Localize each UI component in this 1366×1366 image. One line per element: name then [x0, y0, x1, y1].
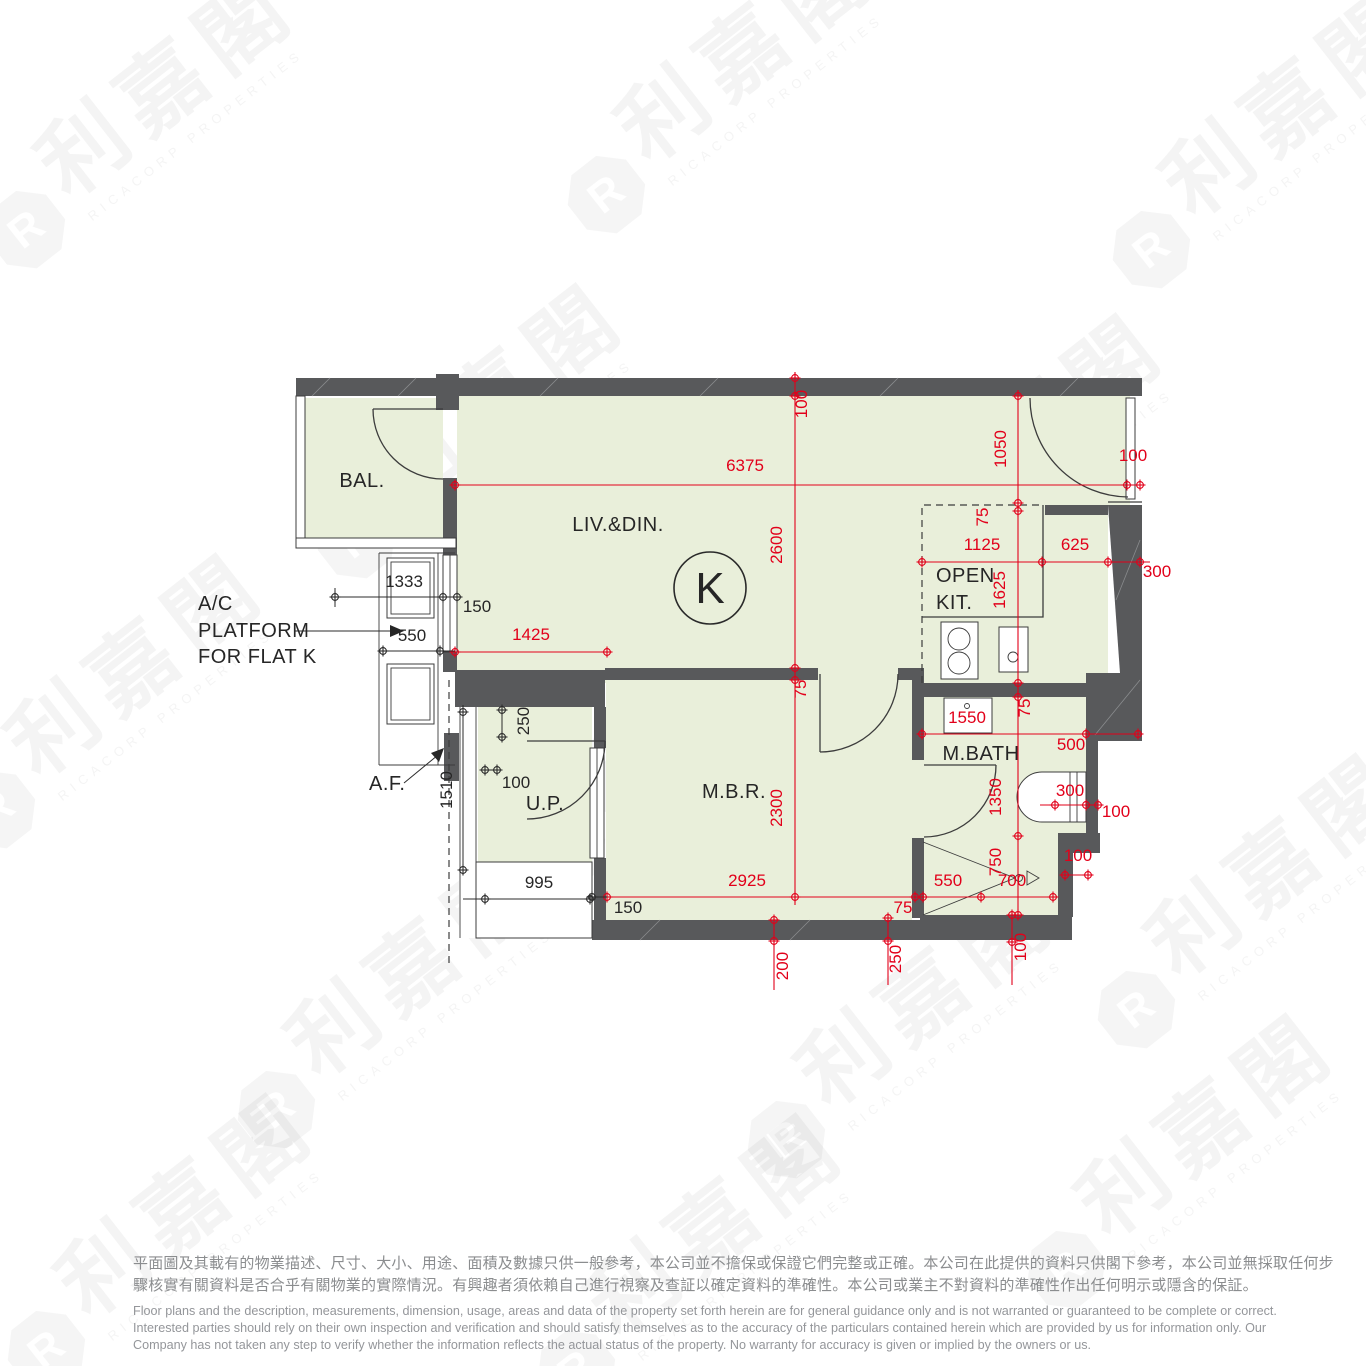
dim-entry-depth: 1050 — [991, 430, 1010, 468]
dim-living-depth: 2600 — [767, 526, 786, 564]
label-balcony: BAL. — [339, 470, 384, 492]
dim-mbr-depth: 2300 — [767, 789, 786, 827]
dim-shower-wall: 75 — [894, 898, 913, 917]
dim-mbr-wall: 75 — [791, 680, 810, 699]
dim-af-length: 1510 — [437, 771, 456, 809]
disclaimer-zh-line2: 驟核實有關資料是否合乎有關物業的實際情況。有興趣者須依賴自己進行視察及查証以確定… — [133, 1275, 1333, 1297]
dim-shower-w1: 550 — [934, 871, 962, 890]
dim-up-step: 250 — [514, 707, 533, 735]
up-floor — [478, 707, 592, 862]
bath-door-gap — [912, 760, 924, 838]
balcony-bottom-parapet — [296, 538, 456, 548]
disclaimer-en-line1: Floor plans and the description, measure… — [133, 1303, 1333, 1320]
disclaimer-en: Floor plans and the description, measure… — [133, 1303, 1333, 1354]
label-utility-platform: U.P. — [526, 793, 564, 815]
dim-bath-depth: 1350 — [986, 778, 1005, 816]
dim-bottom-wall: 100 — [1011, 933, 1030, 961]
dim-mbr-width: 2925 — [728, 871, 766, 890]
label-ac-platform-2: PLATFORM — [198, 620, 309, 642]
dim-entry-door: 100 — [1119, 446, 1147, 465]
label-open-kitchen-1: OPEN — [936, 565, 995, 587]
dim-wall-150: 150 — [463, 597, 491, 616]
kitchen-sink — [999, 627, 1028, 672]
dim-vanity: 1550 — [948, 708, 986, 727]
dim-top-wall: 100 — [792, 390, 811, 418]
balcony-left-parapet — [296, 396, 305, 548]
dim-right-wall: 300 — [1143, 562, 1171, 581]
dim-kit-width-right: 625 — [1061, 535, 1089, 554]
floor-plan-drawing: 100 6375 2600 1050 100 75 1125 625 300 1… — [0, 0, 1366, 1366]
dim-step: 100 — [1064, 846, 1092, 865]
dim-liv-left: 1425 — [512, 625, 550, 644]
label-master-bath: M.BATH — [942, 743, 1019, 765]
balcony-floor — [300, 398, 443, 540]
disclaimer: 平面圖及其載有的物業描述、尺寸、大小、用途、面積及數據只供一般參考，本公司並不擔… — [133, 1253, 1333, 1354]
disclaimer-zh-line1: 平面圖及其載有的物業描述、尺寸、大小、用途、面積及數據只供一般參考，本公司並不擔… — [133, 1253, 1333, 1275]
dim-bottom-mid: 250 — [886, 945, 905, 973]
dim-bath-width: 500 — [1057, 735, 1085, 754]
dim-ac-unit: 1333 — [385, 572, 423, 591]
disclaimer-en-line2: Interested parties should rely on their … — [133, 1320, 1333, 1337]
dim-bath-wall: 75 — [1015, 699, 1034, 718]
label-ac-platform-1: A/C — [198, 593, 233, 615]
dim-up-wall: 100 — [502, 773, 530, 792]
flat-designator: K — [695, 564, 724, 613]
dim-bath-right-wall: 100 — [1102, 802, 1130, 821]
dim-up-width: 995 — [525, 873, 553, 892]
dim-living-width: 6375 — [726, 456, 764, 475]
dim-kit-width-left: 1125 — [964, 535, 1001, 554]
label-open-kitchen-2: KIT. — [936, 592, 972, 614]
dim-kit-top: 75 — [973, 508, 992, 527]
label-master-bedroom: M.B.R. — [702, 781, 766, 803]
dim-tub: 300 — [1056, 781, 1084, 800]
dim-ac-width: 550 — [398, 626, 426, 645]
floor-plan-page: R利嘉閣RICACORP PROPERTIES R利嘉閣RICACORP PRO… — [0, 0, 1366, 1366]
dim-mbr-wall-left: 150 — [614, 898, 642, 917]
ac-unit-2 — [387, 664, 434, 724]
dim-bottom-left: 200 — [773, 952, 792, 980]
label-living-dining: LIV.&DIN. — [572, 514, 664, 536]
af-arrow — [431, 748, 444, 762]
label-af: A.F. — [369, 773, 405, 795]
disclaimer-en-line3: Company has not taken any step to verify… — [133, 1337, 1333, 1354]
louvre-strip — [459, 707, 478, 938]
stove — [941, 622, 978, 679]
dim-shower-depth: 750 — [986, 848, 1005, 876]
label-ac-platform-3: FOR FLAT K — [198, 646, 317, 668]
